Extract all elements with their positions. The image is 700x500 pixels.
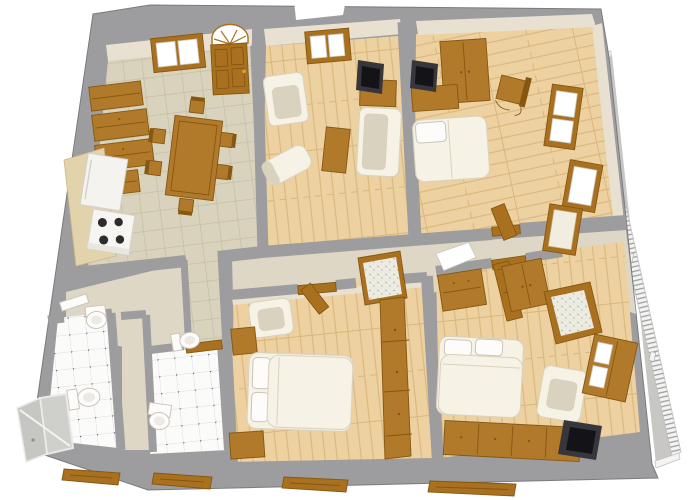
- tiled-doorway-bedroom-2: [358, 251, 407, 305]
- floor-plan-render: [0, 0, 700, 500]
- shower-drain: [31, 438, 34, 441]
- dining-chair: [148, 128, 166, 144]
- dining-chair: [215, 164, 233, 180]
- dining-chair: [144, 160, 162, 176]
- sideboard: [443, 420, 581, 461]
- entry-door: [211, 24, 250, 94]
- chest: [231, 327, 258, 355]
- bathroom-2-floor: [150, 344, 228, 454]
- double-bed: [247, 352, 354, 432]
- double-bed: [436, 336, 524, 418]
- sofa: [356, 107, 402, 177]
- stove: [87, 209, 135, 255]
- armchair: [536, 365, 588, 424]
- refrigerator: [80, 153, 128, 211]
- standing-door-frame: [543, 204, 583, 256]
- kitchen-window: [150, 33, 205, 72]
- coffee-table: [322, 127, 350, 173]
- dining-chair: [219, 132, 237, 148]
- nightstand: [229, 431, 265, 459]
- floor-plan-stage: [0, 0, 700, 500]
- dining-table: [165, 115, 222, 200]
- living-room-window: [305, 28, 352, 64]
- dining-chair: [189, 96, 205, 114]
- tv: [558, 420, 602, 460]
- pedestal-sink: [85, 305, 107, 329]
- armchair: [263, 72, 310, 127]
- dining-chair: [178, 198, 194, 216]
- bed: [412, 115, 490, 182]
